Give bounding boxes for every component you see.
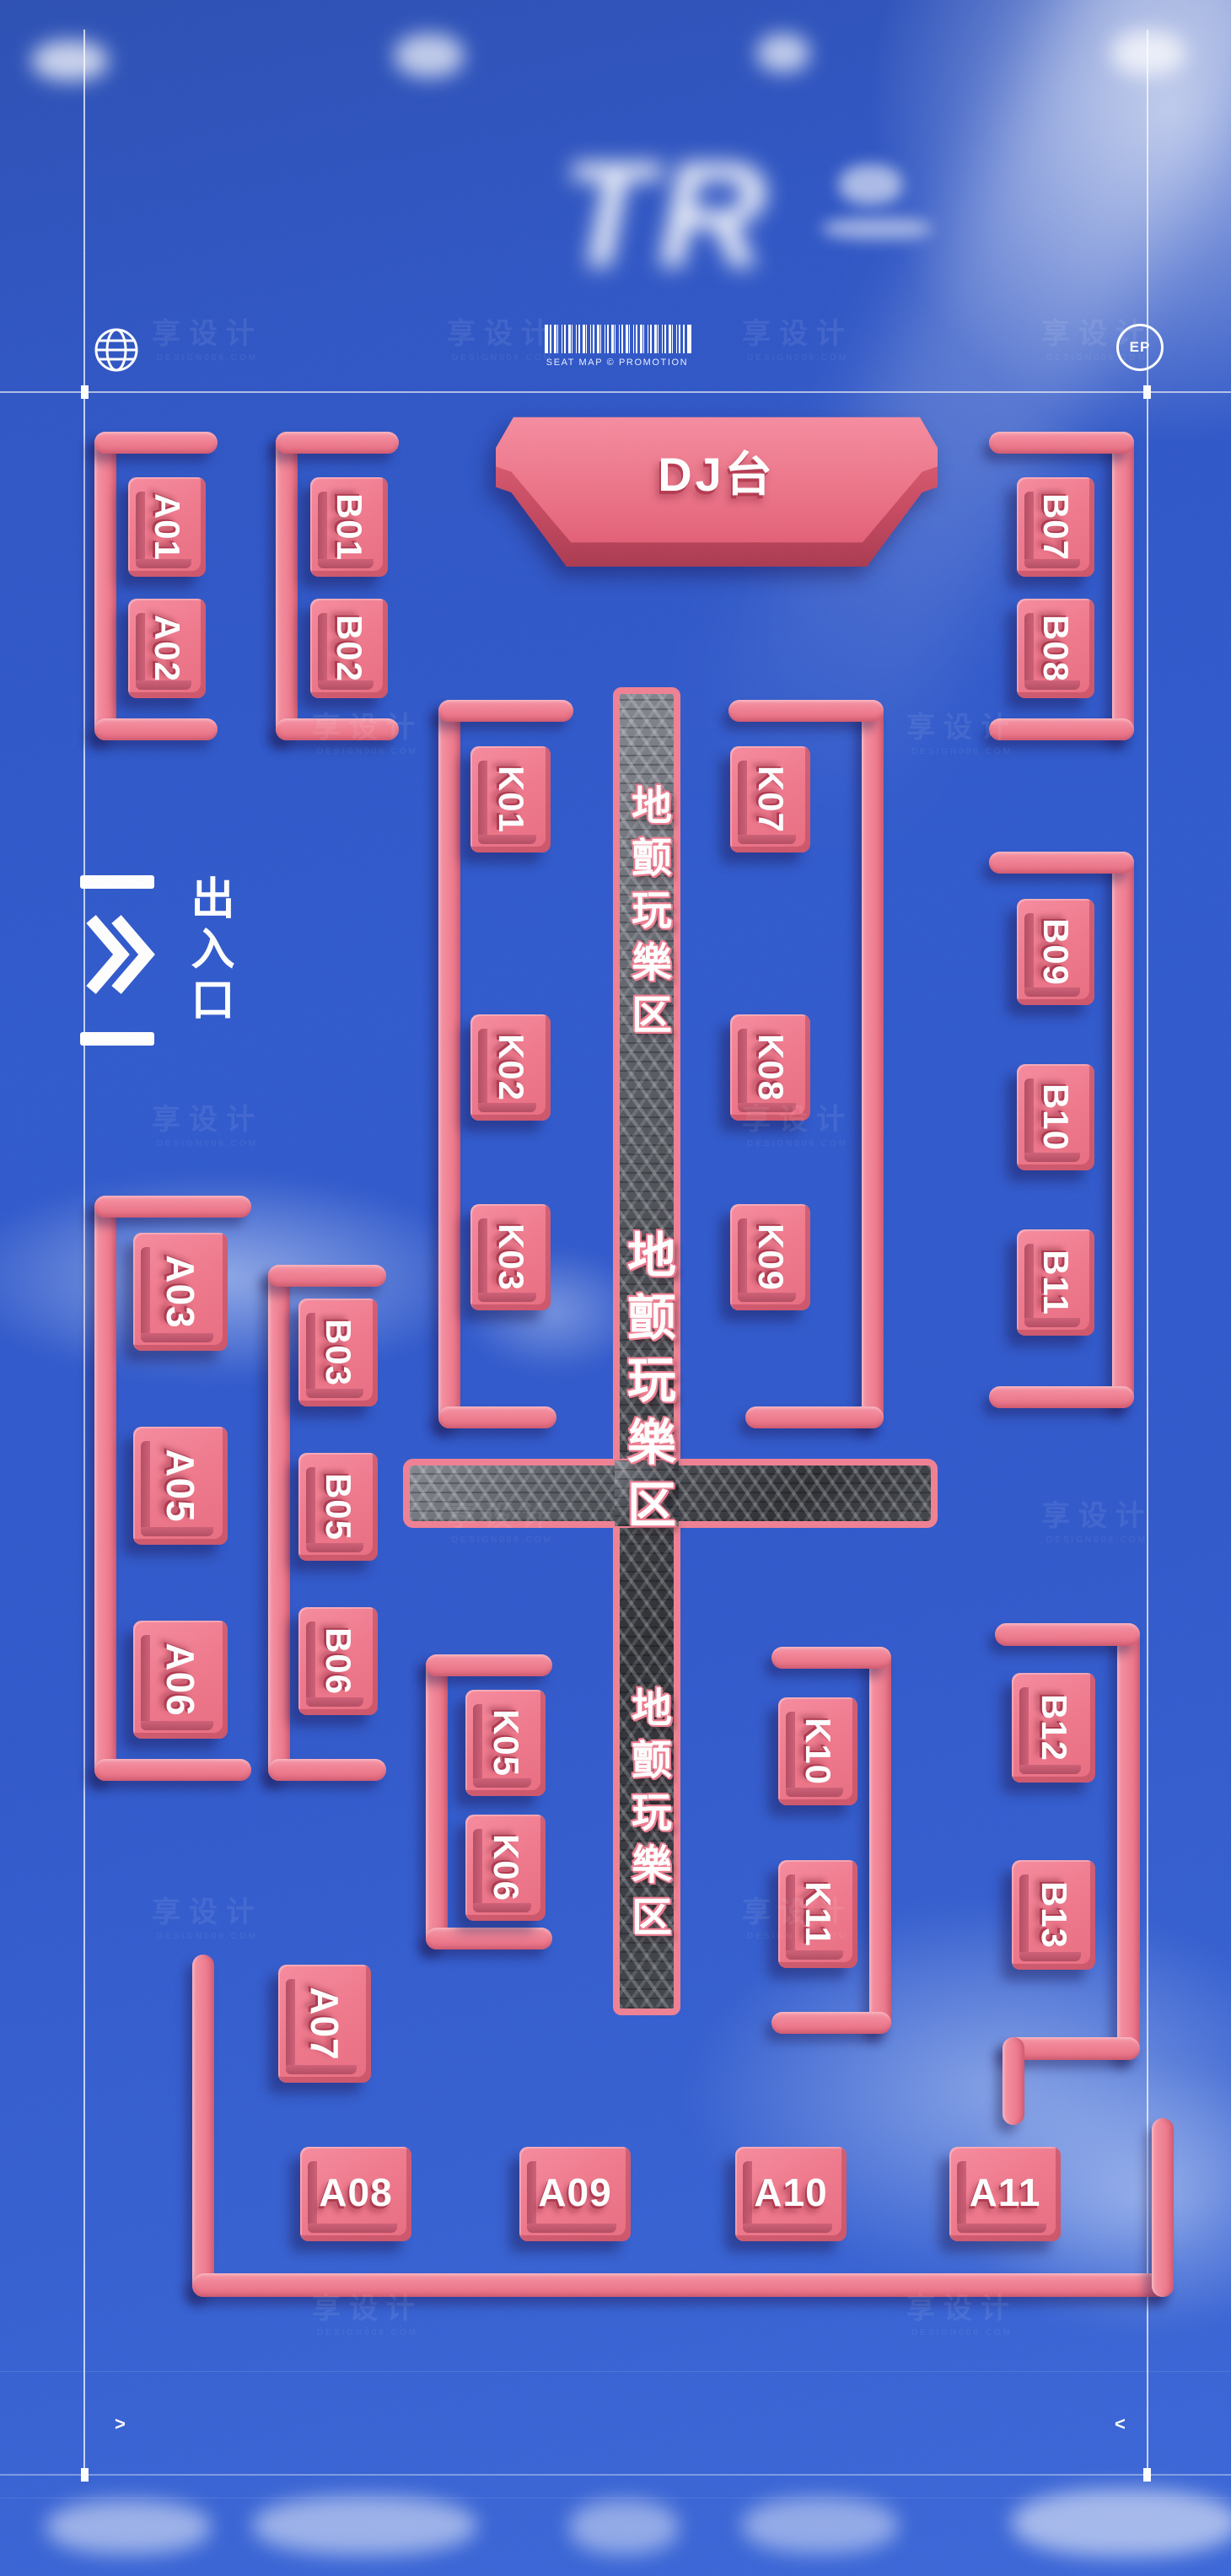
seat-B01[interactable]: B01 (310, 477, 388, 577)
barcode-caption: SEAT MAP © PROMOTION (482, 358, 752, 368)
blurred-text (742, 2498, 898, 2553)
bracket-bar (268, 1759, 386, 1781)
entrance-label: 出入口 (177, 875, 240, 1027)
frame-cap (81, 385, 89, 399)
seat-A07[interactable]: A07 (278, 1965, 371, 2083)
seat-label: K03 (491, 1223, 531, 1291)
seat-K05[interactable]: K05 (465, 1690, 546, 1796)
seat-label: A07 (302, 1987, 347, 2060)
bracket-bar (94, 1196, 251, 1218)
walkway-label: 地颤玩樂区 (617, 1686, 676, 1948)
blurred-logo (32, 40, 108, 81)
seat-B03[interactable]: B03 (298, 1299, 378, 1406)
bracket-bar (995, 1623, 1140, 1646)
double-chevron-icon (83, 912, 155, 1001)
blurred-text (253, 2496, 476, 2555)
bracket-bar (276, 432, 298, 740)
frame-line-bottom (0, 2474, 1231, 2476)
seat-A02[interactable]: A02 (128, 599, 206, 698)
seat-label: B07 (1035, 493, 1076, 561)
seat-label: K07 (750, 766, 791, 833)
seat-K03[interactable]: K03 (470, 1204, 551, 1310)
seat-label: K02 (491, 1034, 531, 1101)
seat-label: B13 (1034, 1881, 1074, 1949)
bracket-bar (192, 2273, 1174, 2297)
bracket-bar (438, 1406, 556, 1428)
bracket-bar (771, 1647, 891, 1669)
blurred-logo-mark (839, 164, 902, 205)
corner-mark-right: < (1115, 2413, 1126, 2435)
seat-B06[interactable]: B06 (298, 1607, 378, 1715)
walkway-label: 地颤玩樂区 (617, 784, 676, 1046)
bracket-bar (94, 1759, 251, 1781)
bracket-bar (989, 432, 1134, 454)
seat-A06[interactable]: A06 (133, 1621, 228, 1739)
bracket-bar (862, 700, 884, 1428)
blurred-text (1012, 2489, 1231, 2557)
seat-A10[interactable]: A10 (735, 2147, 847, 2241)
seat-label: B11 (1035, 1250, 1076, 1315)
bracket-bar (1112, 852, 1134, 1408)
blurred-logo-mark (822, 218, 932, 239)
seat-label: B03 (318, 1319, 358, 1386)
watermark: 享设计DESIGN006.COM (447, 310, 558, 363)
seat-label: K06 (486, 1834, 526, 1901)
bracket-bar (268, 1265, 386, 1287)
seat-label: B05 (318, 1473, 358, 1541)
bracket-bar (989, 1386, 1134, 1408)
seat-K07[interactable]: K07 (730, 746, 810, 852)
bracket-bar (438, 700, 573, 722)
frame-cap (1143, 385, 1151, 399)
blurred-logo (1111, 30, 1185, 76)
seat-label: K09 (750, 1223, 791, 1291)
seat-label: B08 (1035, 615, 1076, 682)
seat-B05[interactable]: B05 (298, 1453, 378, 1561)
seat-A03[interactable]: A03 (133, 1233, 228, 1351)
seat-label: K10 (798, 1718, 838, 1785)
seat-B02[interactable]: B02 (310, 599, 388, 698)
seat-B10[interactable]: B10 (1017, 1064, 1094, 1170)
bracket-bar (94, 1196, 116, 1781)
seat-label: B10 (1035, 1084, 1076, 1151)
barcode (550, 325, 685, 353)
seat-B09[interactable]: B09 (1017, 899, 1094, 1005)
frame-cap (1143, 2468, 1151, 2482)
seat-label: A03 (158, 1255, 203, 1328)
bracket-bar (192, 1955, 214, 2297)
seat-B13[interactable]: B13 (1012, 1860, 1095, 1970)
bracket-bar (1003, 2037, 1024, 2125)
bracket-bar (771, 2012, 891, 2034)
blurred-text (569, 2500, 679, 2554)
bracket-bar (989, 852, 1134, 874)
bracket-bar (94, 718, 218, 740)
dj-stage: DJ台 (496, 413, 938, 575)
bracket-bar (989, 718, 1134, 740)
watermark: 享设计DESIGN006.COM (1041, 1492, 1153, 1545)
bracket-bar (728, 700, 884, 722)
corner-mark-left: > (115, 2413, 126, 2435)
entrance-bar-bottom (80, 1032, 154, 1046)
seat-label: A01 (147, 493, 187, 561)
globe-icon (91, 325, 142, 379)
bracket-bar (1112, 432, 1134, 740)
seat-label: K05 (486, 1709, 526, 1777)
seat-K11[interactable]: K11 (778, 1860, 857, 1968)
seat-A05[interactable]: A05 (133, 1427, 228, 1545)
bracket-bar (426, 1654, 552, 1676)
seat-B08[interactable]: B08 (1017, 599, 1094, 698)
seat-label: B09 (1035, 918, 1076, 986)
seat-K09[interactable]: K09 (730, 1204, 810, 1310)
seat-label: K08 (750, 1034, 791, 1101)
seat-B11[interactable]: B11 (1017, 1229, 1094, 1336)
seat-B12[interactable]: B12 (1012, 1673, 1095, 1783)
bracket-bar (94, 432, 218, 454)
blurred-logo (757, 34, 809, 73)
blurred-text (46, 2500, 211, 2554)
blurred-logo (395, 34, 464, 78)
seat-label: B02 (329, 615, 369, 682)
bracket-bar (438, 700, 460, 1428)
bracket-bar (745, 1406, 884, 1428)
seat-label: A09 (538, 2170, 611, 2215)
seat-K10[interactable]: K10 (778, 1697, 857, 1805)
frame-line-faint (0, 2371, 1231, 2372)
watermark: 享设计DESIGN006.COM (152, 1889, 263, 1941)
entrance-bar-top (80, 875, 154, 889)
seat-label: A05 (158, 1449, 203, 1522)
event-logo-blurred: TR (405, 126, 927, 304)
seat-K02[interactable]: K02 (470, 1014, 551, 1121)
bracket-bar (276, 718, 399, 740)
seat-label: A08 (319, 2170, 392, 2215)
seat-label: A02 (147, 615, 187, 682)
seat-label: B01 (329, 493, 369, 561)
seat-K01[interactable]: K01 (470, 746, 551, 852)
bracket-bar (426, 1928, 552, 1949)
bracket-bar (1117, 1623, 1140, 2060)
seat-B07[interactable]: B07 (1017, 477, 1094, 577)
watermark: 享设计DESIGN006.COM (152, 310, 263, 363)
seat-map-poster: TR SEAT MAP © PROMOTION EP DJ台 地颤玩樂 (0, 0, 1231, 2576)
seat-K08[interactable]: K08 (730, 1014, 810, 1121)
seat-label: A11 (970, 2170, 1041, 2215)
bracket-bar (1152, 2118, 1174, 2297)
ep-badge: EP (1116, 324, 1164, 371)
seat-label: B12 (1034, 1694, 1074, 1761)
bracket-bar (426, 1654, 448, 1949)
seat-label: A06 (158, 1643, 203, 1716)
seat-A01[interactable]: A01 (128, 477, 206, 577)
dj-stage-label: DJ台 (496, 437, 938, 505)
frame-cap (81, 2468, 89, 2482)
bracket-bar (869, 1647, 891, 2034)
seat-label: A10 (754, 2170, 827, 2215)
frame-line-top (0, 391, 1231, 393)
seat-label: K01 (491, 766, 531, 833)
seat-K06[interactable]: K06 (465, 1815, 546, 1921)
bracket-bar (276, 432, 399, 454)
seat-A09[interactable]: A09 (519, 2147, 631, 2241)
seat-label: K11 (798, 1881, 838, 1947)
watermark: 享设计DESIGN006.COM (152, 1096, 263, 1148)
seat-A08[interactable]: A08 (300, 2147, 411, 2241)
seat-label: B06 (318, 1627, 358, 1695)
walkway-label: 地颤玩樂区 (611, 1229, 682, 1541)
bracket-bar (94, 432, 116, 740)
watermark: 享设计DESIGN006.COM (742, 310, 853, 363)
bracket-bar (268, 1265, 290, 1781)
seat-A11[interactable]: A11 (949, 2147, 1061, 2241)
